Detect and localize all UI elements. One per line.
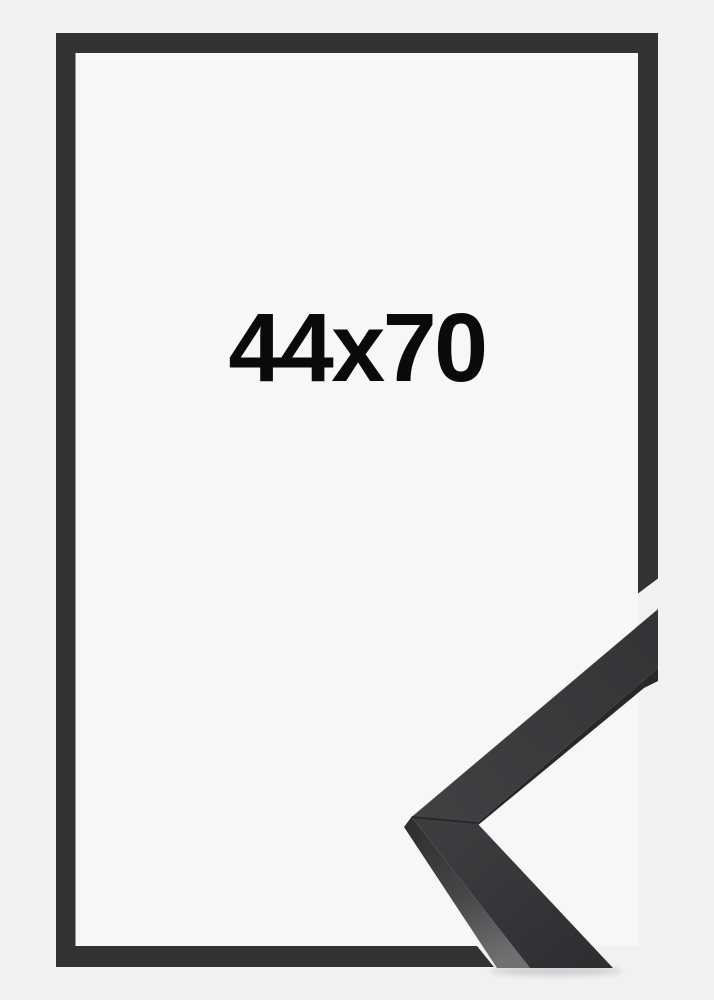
product-image: 44x70 <box>0 0 714 1000</box>
size-label: 44x70 <box>0 288 714 408</box>
frame-illustration <box>0 0 714 1000</box>
frame-inner-area <box>76 53 639 946</box>
